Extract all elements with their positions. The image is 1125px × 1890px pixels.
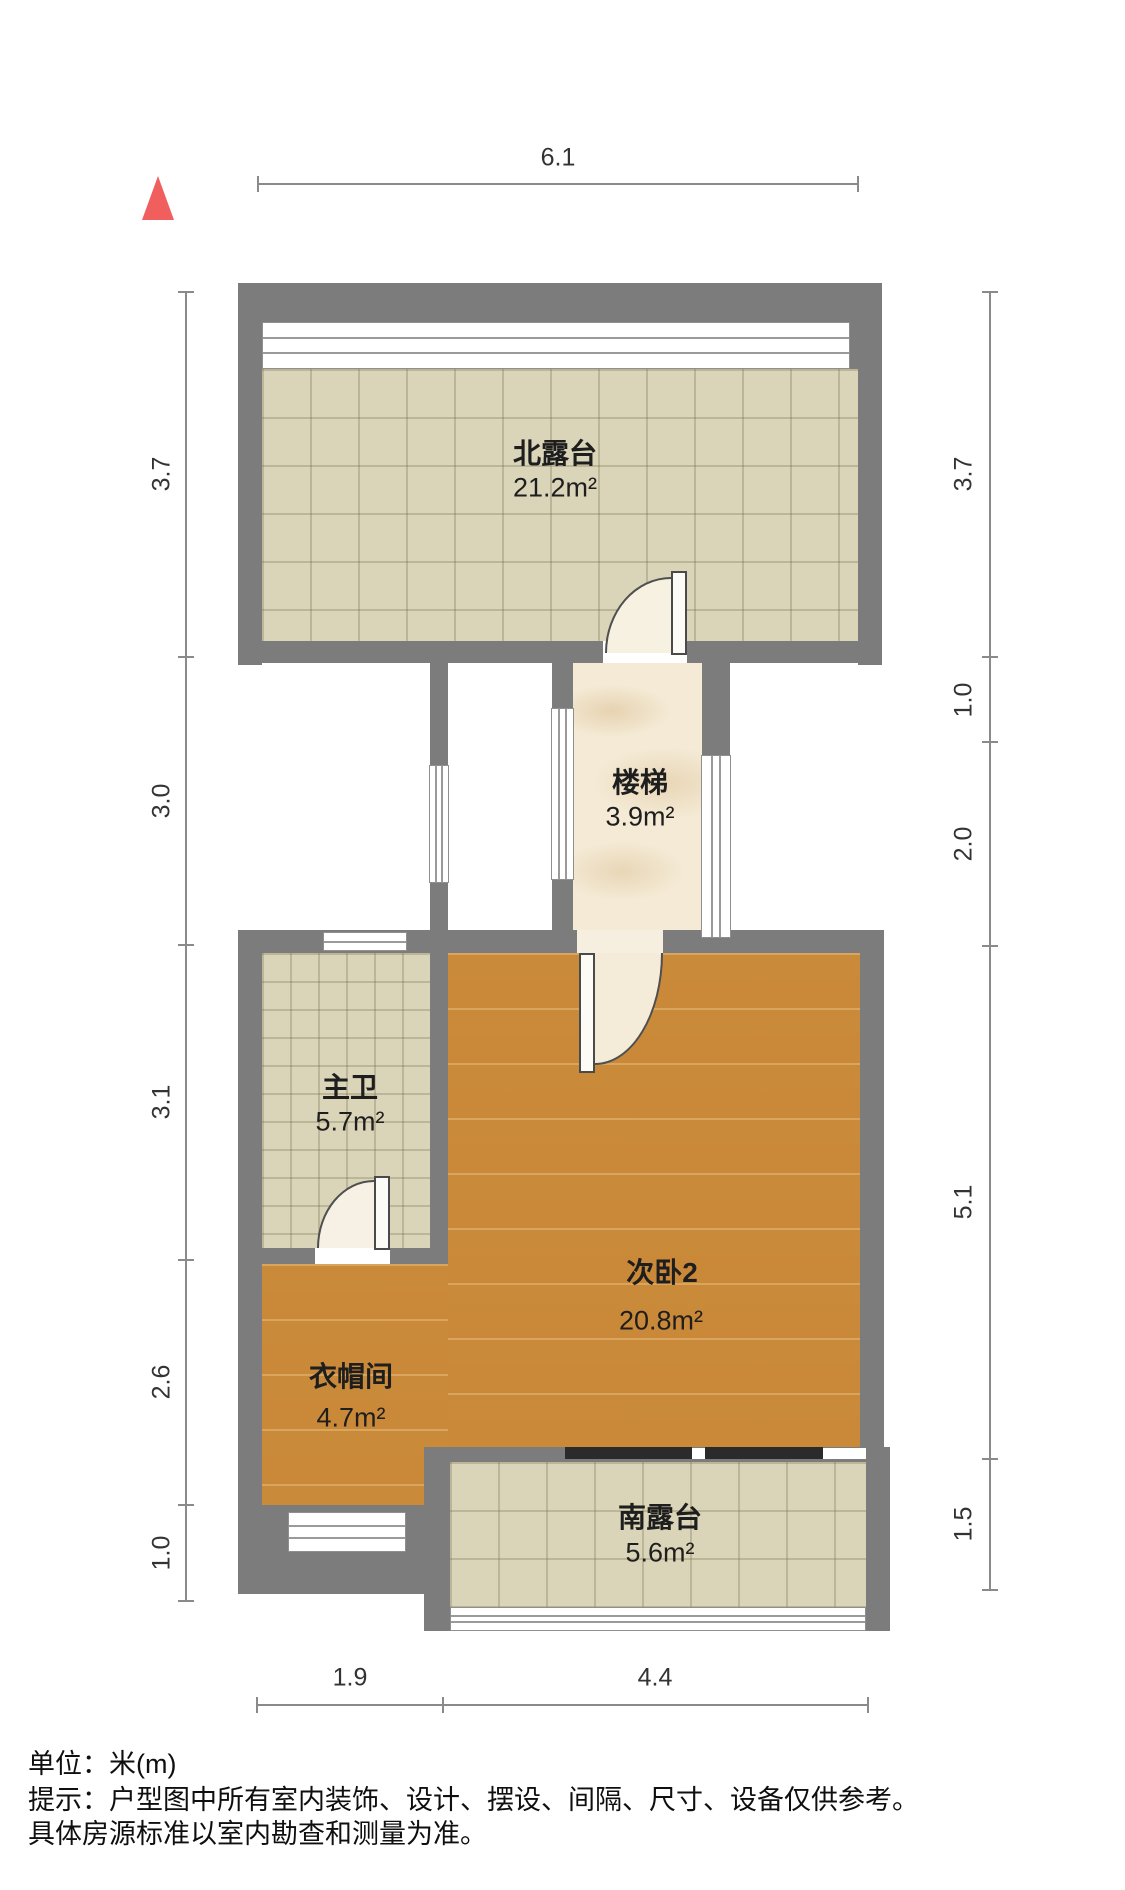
dim-tick [178, 1504, 194, 1506]
room-name: 北露台 [513, 438, 597, 469]
room-area: 4.7m² [316, 1403, 385, 1433]
wall [866, 1447, 890, 1631]
window [551, 708, 574, 880]
room-name: 主卫 [322, 1072, 378, 1103]
door-leaf [579, 953, 595, 1073]
dim-tick [178, 1259, 194, 1261]
dim-value: 5.1 [950, 1185, 979, 1220]
footer-unit-note: 单位：米(m) [28, 1742, 176, 1781]
dim-tick [178, 1600, 194, 1602]
dim-tick [982, 656, 998, 658]
dim-tick [867, 1697, 869, 1713]
dim-value: 1.9 [333, 1664, 368, 1693]
wall [858, 283, 882, 665]
room-name: 南露台 [618, 1502, 702, 1533]
window [701, 755, 731, 938]
floor-plan-page: 北露台 21.2m² 楼梯 3.9m² 主卫 5.7m² 次卧2 20.8m² … [0, 0, 1125, 1890]
dim-line-left [185, 292, 187, 1601]
room-area: 5.7m² [315, 1107, 384, 1137]
footer-disclaimer-line2: 具体房源标准以室内勘查和测量为准。 [28, 1812, 487, 1851]
dim-value: 1.5 [950, 1507, 979, 1542]
wall [424, 1447, 450, 1631]
railing-gap [823, 1448, 866, 1459]
window [262, 322, 850, 369]
room-area: 5.6m² [625, 1538, 694, 1568]
dim-value: 3.0 [148, 784, 177, 819]
room-label-master-bath: 主卫 [322, 1066, 378, 1106]
dim-tick [178, 291, 194, 293]
dim-value: 4.4 [638, 1664, 673, 1693]
dim-value: 2.0 [950, 827, 979, 862]
room-label-cloakroom: 衣帽间 [309, 1355, 393, 1395]
dim-tick [982, 741, 998, 743]
dim-tick [982, 291, 998, 293]
room-label-north-terrace: 北露台 [513, 432, 597, 472]
room-area: 3.9m² [605, 802, 674, 832]
room-name: 衣帽间 [309, 1361, 393, 1392]
floor-north-terrace [262, 369, 858, 641]
wall [448, 930, 577, 953]
window [323, 932, 407, 951]
wall [430, 641, 448, 1264]
wall [238, 641, 603, 663]
wall [390, 1248, 448, 1264]
dim-value: 1.0 [950, 683, 979, 718]
wall [238, 283, 882, 322]
dim-tick [982, 1589, 998, 1591]
dim-tick [256, 1697, 258, 1713]
dim-line-right [989, 292, 991, 1590]
dim-value: 2.6 [148, 1365, 177, 1400]
balcony-railing [705, 1447, 823, 1459]
window [450, 1607, 866, 1631]
room-area-stairs: 3.9m² [605, 802, 674, 833]
dim-tick [857, 176, 859, 192]
room-area-bedroom2: 20.8m² [619, 1306, 703, 1337]
north-arrow-icon [142, 176, 174, 220]
room-area: 21.2m² [513, 473, 597, 503]
floor-bedroom2 [448, 953, 860, 1447]
dim-tick [982, 1458, 998, 1460]
room-area-north-terrace: 21.2m² [513, 473, 597, 504]
door-leaf [671, 571, 687, 655]
wall [663, 930, 882, 953]
dim-tick [442, 1697, 444, 1713]
room-name: 楼梯 [612, 767, 668, 798]
dim-tick [982, 945, 998, 947]
balcony-railing [565, 1447, 692, 1459]
railing-gap [692, 1448, 705, 1459]
room-label-south-terrace: 南露台 [618, 1496, 702, 1536]
dim-tick [178, 656, 194, 658]
stair-door-opening [577, 930, 663, 953]
room-label-stairs: 楼梯 [612, 761, 668, 801]
dim-line-bottom [257, 1704, 868, 1706]
dim-value: 3.1 [148, 1085, 177, 1120]
wall [860, 930, 884, 1462]
window [429, 765, 449, 883]
dim-tick [178, 944, 194, 946]
wall [238, 283, 262, 665]
dim-value: 6.1 [541, 144, 576, 173]
room-area-cloakroom: 4.7m² [316, 1403, 385, 1434]
dim-line-top [258, 183, 858, 185]
room-area-master-bath: 5.7m² [315, 1107, 384, 1138]
dim-value: 3.7 [148, 457, 177, 492]
door-leaf [374, 1176, 390, 1250]
window [288, 1512, 406, 1552]
dim-value: 3.7 [950, 457, 979, 492]
room-area-south-terrace: 5.6m² [625, 1538, 694, 1569]
room-name: 次卧2 [626, 1257, 698, 1288]
wall [238, 1248, 315, 1264]
room-label-bedroom2: 次卧2 [626, 1251, 698, 1291]
room-area: 20.8m² [619, 1306, 703, 1336]
dim-tick [257, 176, 259, 192]
dim-value: 1.0 [148, 1536, 177, 1571]
